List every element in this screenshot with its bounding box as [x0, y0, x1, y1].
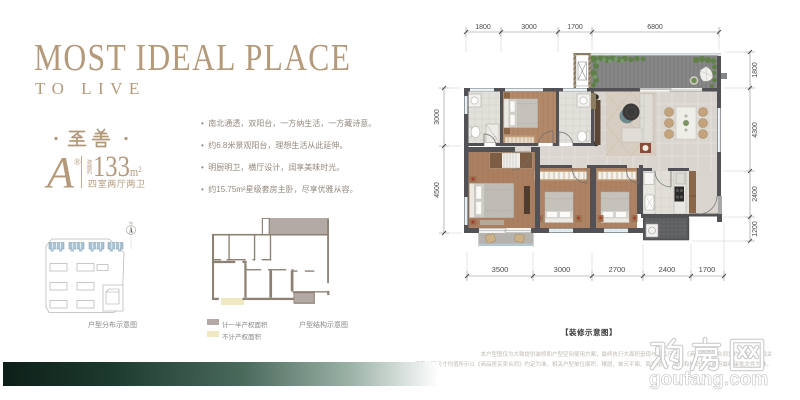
- svg-text:3000: 3000: [521, 24, 537, 31]
- svg-text:1800: 1800: [752, 62, 759, 78]
- svg-text:4500: 4500: [434, 182, 441, 198]
- svg-text:2400: 2400: [659, 265, 676, 274]
- svg-text:3500: 3500: [492, 265, 509, 274]
- svg-text:2700: 2700: [609, 265, 626, 274]
- svg-text:6800: 6800: [647, 24, 663, 31]
- svg-text:2400: 2400: [752, 186, 759, 202]
- svg-text:3000: 3000: [434, 109, 441, 125]
- svg-text:4300: 4300: [752, 122, 759, 138]
- svg-text:1200: 1200: [752, 221, 759, 237]
- svg-text:1800: 1800: [475, 24, 491, 31]
- svg-text:1700: 1700: [699, 265, 716, 274]
- svg-text:3000: 3000: [554, 265, 571, 274]
- svg-text:N: N: [129, 221, 132, 226]
- svg-text:1700: 1700: [567, 24, 583, 31]
